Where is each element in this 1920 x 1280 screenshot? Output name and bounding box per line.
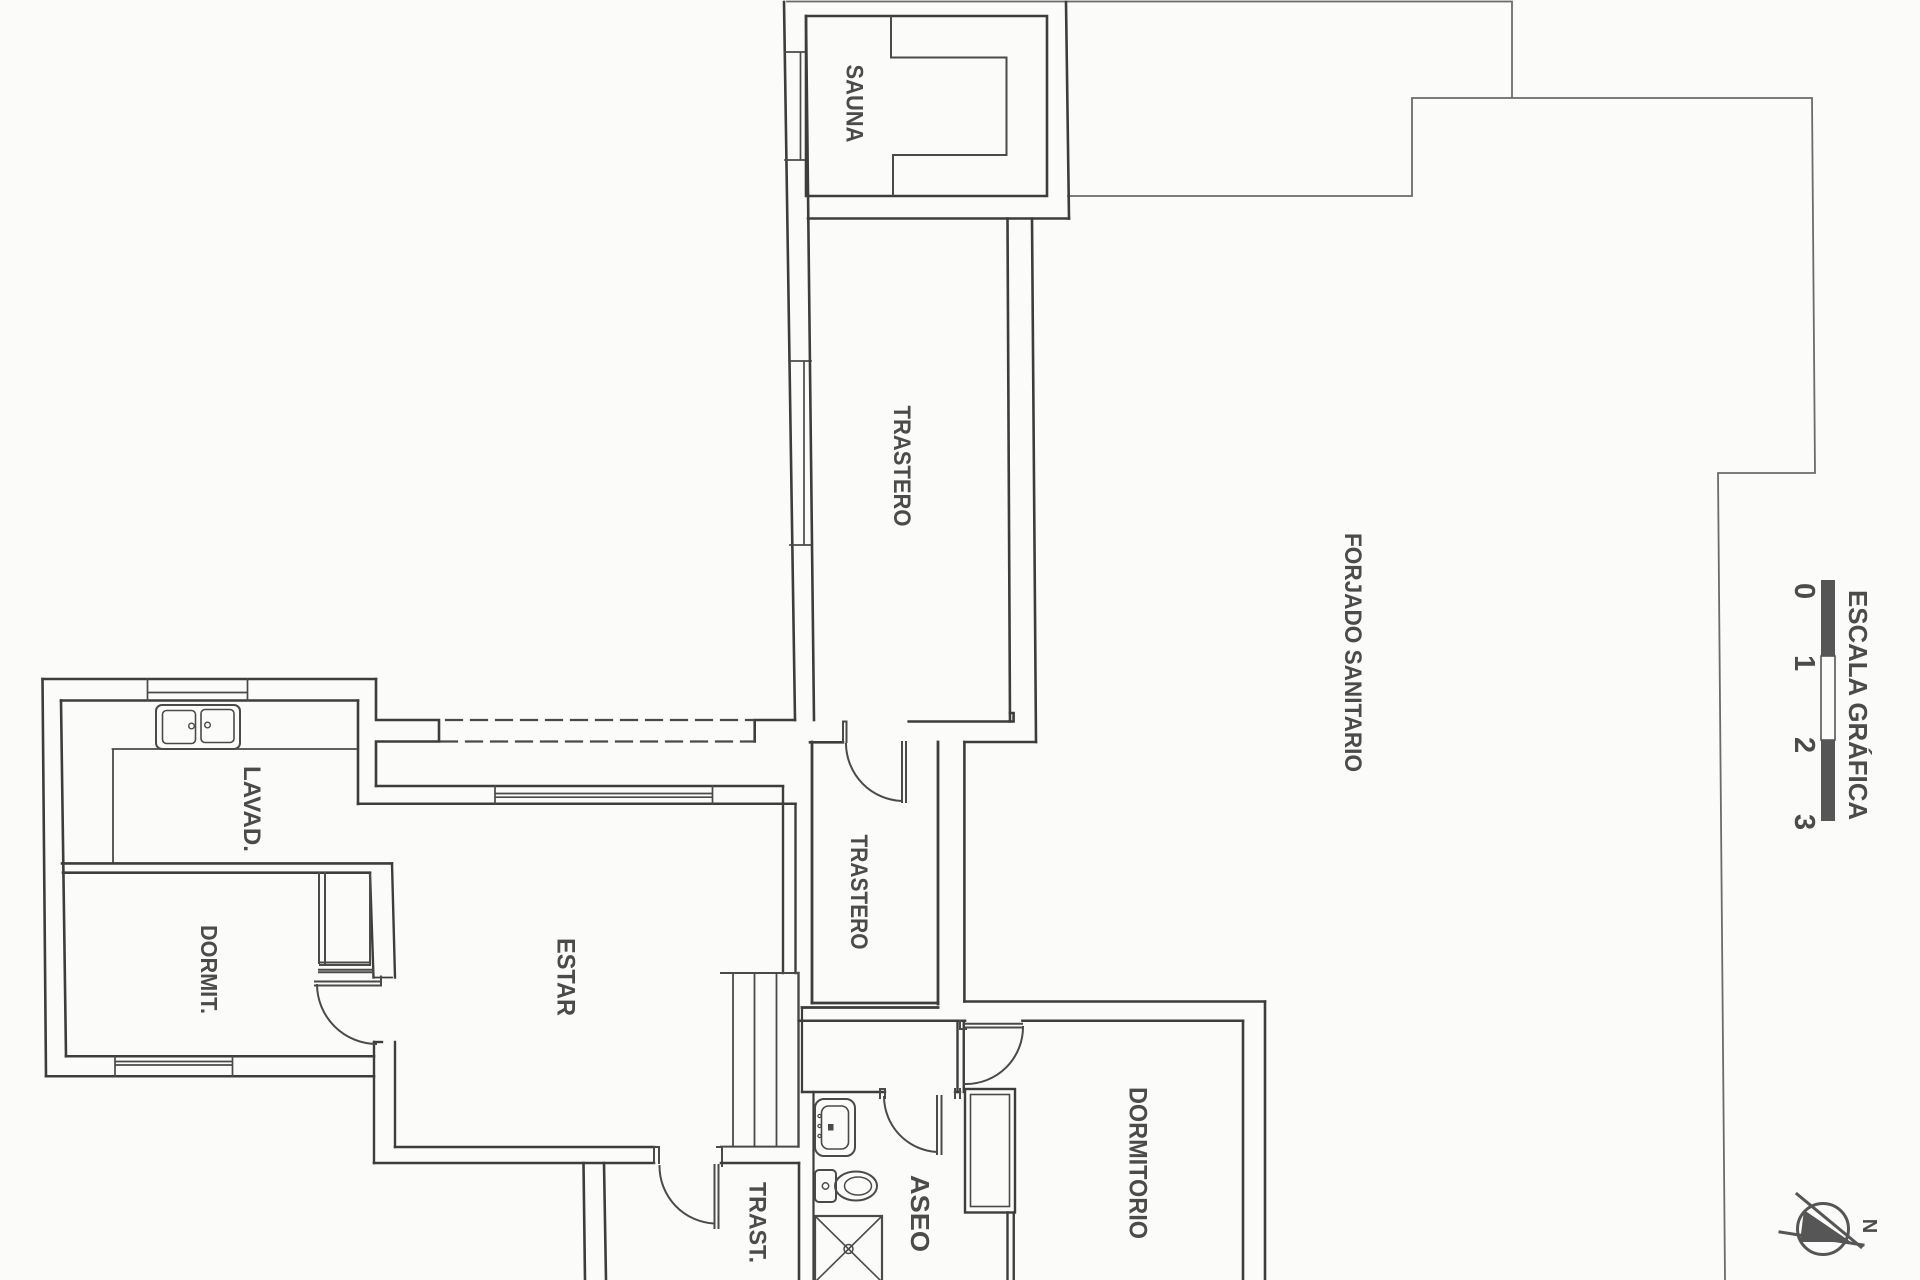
svg-text:1: 1: [1788, 655, 1820, 671]
svg-text:2: 2: [1788, 737, 1820, 753]
svg-text:SAUNA: SAUNA: [841, 65, 868, 143]
svg-text:0: 0: [1788, 583, 1820, 599]
svg-text:DORMIT.: DORMIT.: [196, 925, 222, 1014]
svg-text:DORMITORIO: DORMITORIO: [1124, 1087, 1152, 1239]
svg-text:N: N: [1858, 1219, 1880, 1233]
svg-text:ESTAR: ESTAR: [552, 938, 580, 1016]
svg-text:ESCALA GRÁFICA: ESCALA GRÁFICA: [1843, 590, 1873, 820]
svg-text:TRAST.: TRAST.: [744, 1182, 771, 1263]
svg-text:TRASTERO: TRASTERO: [845, 835, 872, 950]
svg-text:TRASTERO: TRASTERO: [888, 406, 915, 527]
svg-text:FORJADO SANITARIO: FORJADO SANITARIO: [1339, 533, 1366, 772]
svg-text:ASEO: ASEO: [905, 1175, 935, 1252]
svg-text:3: 3: [1788, 814, 1820, 830]
svg-text:LAVAD.: LAVAD.: [238, 766, 265, 852]
